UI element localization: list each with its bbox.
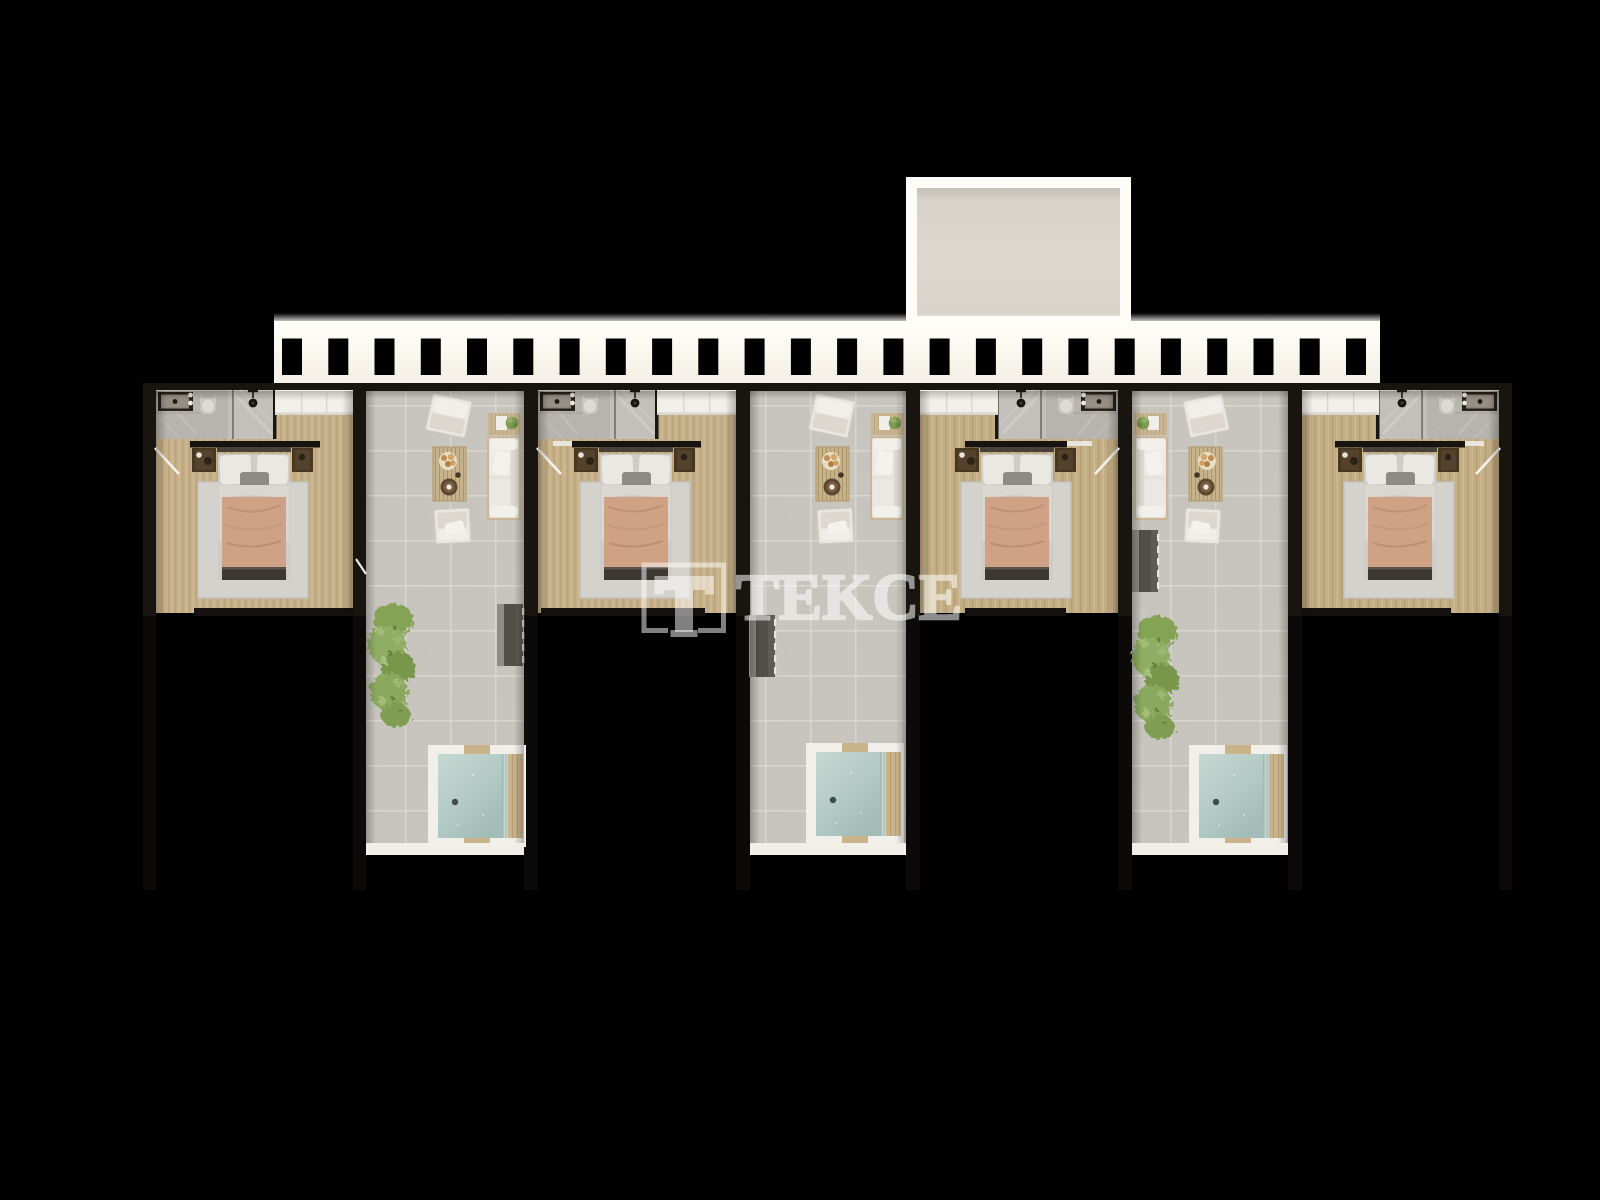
svg-text:TEKCE: TEKCE (736, 561, 962, 634)
